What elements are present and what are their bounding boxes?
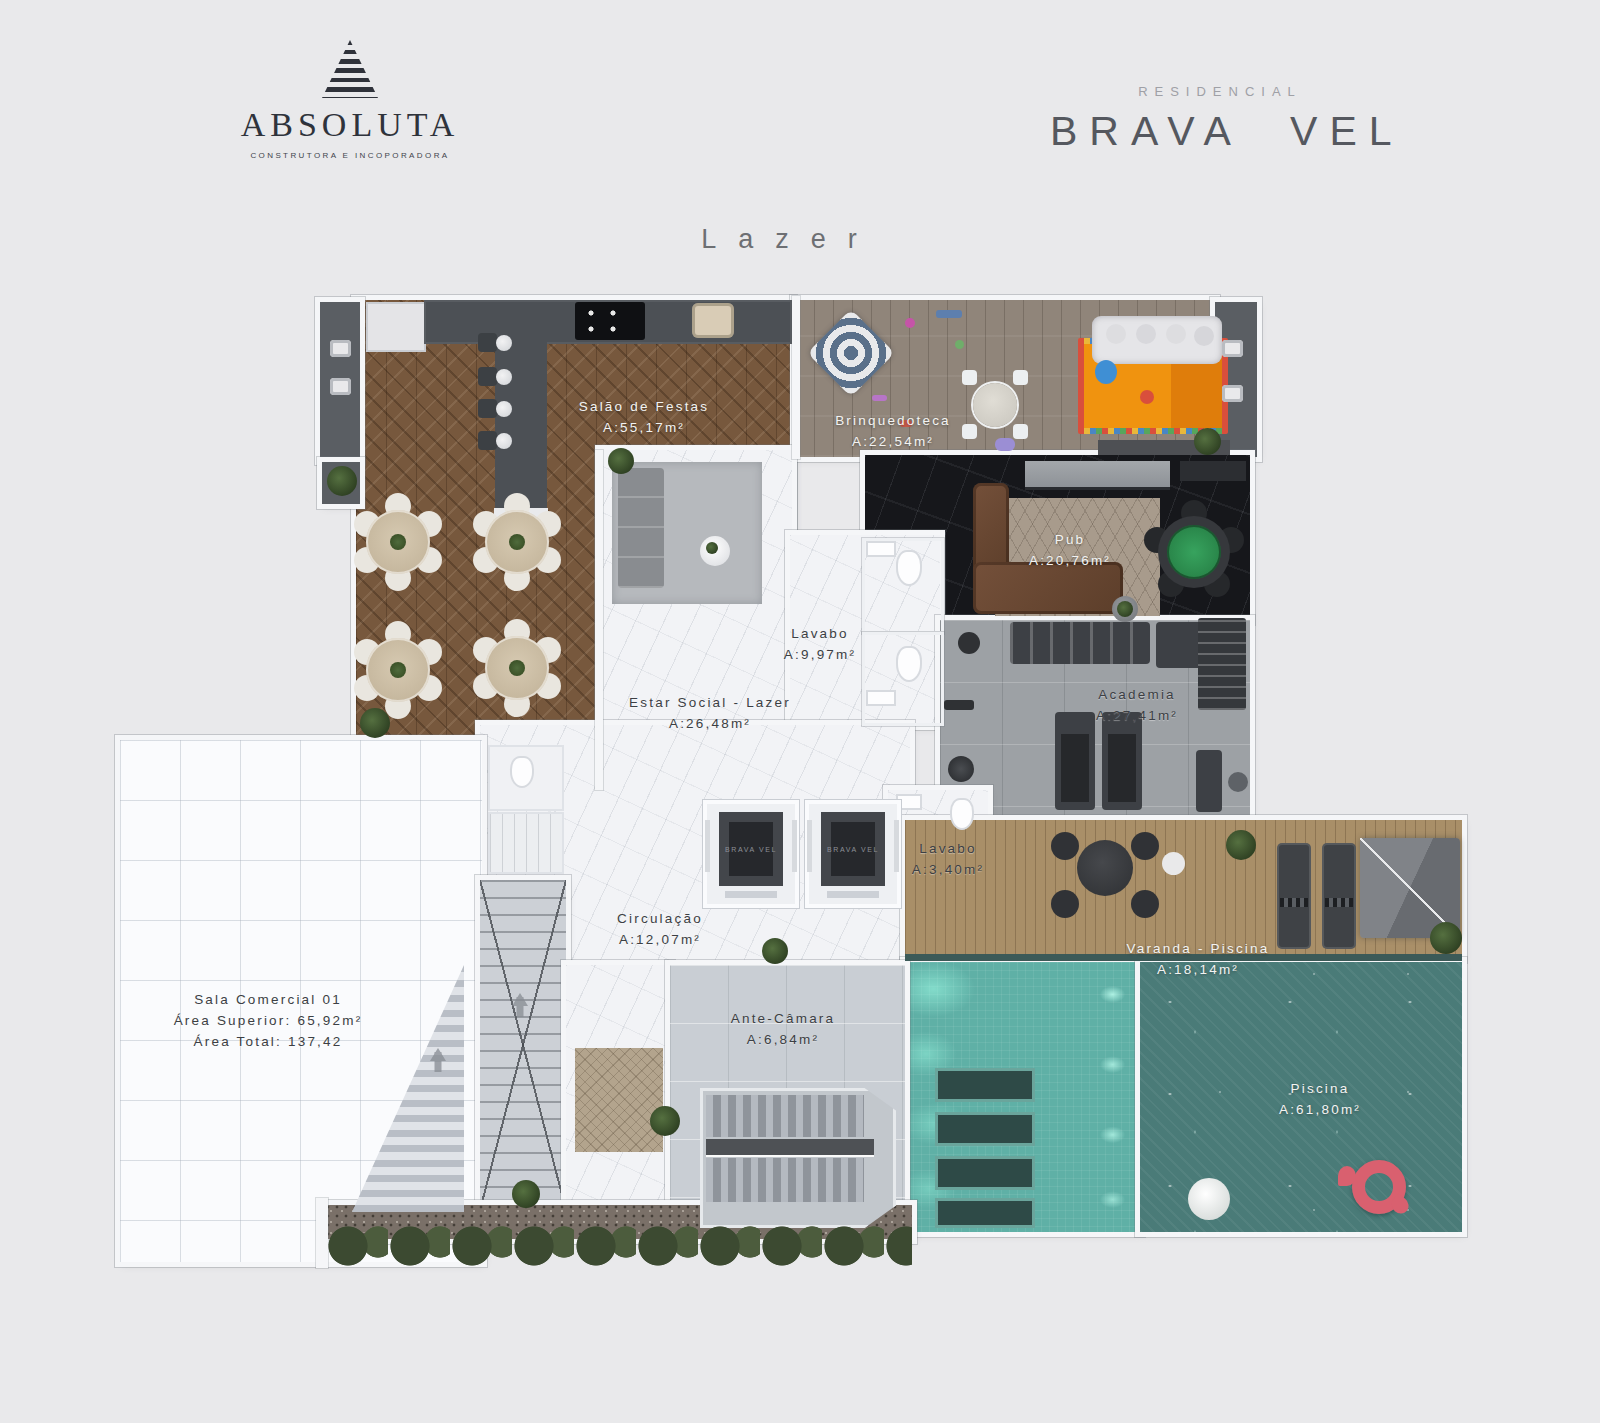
toilet (952, 800, 972, 828)
pub-bar-shelf (1180, 461, 1246, 481)
plant (1226, 830, 1256, 860)
bar-stool-seat (496, 335, 512, 351)
deck-lounger (1322, 843, 1356, 949)
elevator-mat: BRAVA VEL (729, 822, 773, 876)
deck-side-table (1162, 852, 1185, 875)
toy (936, 310, 962, 318)
stairs-upper-flight (706, 1095, 864, 1137)
bar-stool (478, 399, 497, 418)
elevator-mat: BRAVA VEL (831, 822, 875, 876)
label-varanda-piscina: Varanda - PiscinaA:18,14m² (1127, 939, 1270, 981)
toy (955, 340, 964, 349)
label-ante-camara: Ante-CâmaraA:6,84m² (731, 1009, 835, 1051)
bar-stool (478, 431, 497, 450)
barbell (944, 700, 974, 710)
dining-table (469, 620, 565, 716)
flamingo-float-head (1338, 1166, 1356, 1186)
pool-lounger (935, 1112, 1035, 1146)
plant (762, 938, 788, 964)
toy (872, 395, 887, 401)
rug-motif (1095, 360, 1117, 384)
up-arrow-icon (430, 1040, 446, 1074)
cooktop (575, 302, 645, 340)
toy (905, 318, 915, 328)
label-piscina: PiscinaA:61,80m² (1279, 1079, 1361, 1121)
project-logo: RESIDENCIAL BRAVA VEL (1050, 84, 1390, 155)
project-kicker: RESIDENCIAL (1050, 84, 1390, 99)
pool-lounger (935, 1068, 1035, 1102)
deck-dining-table (1077, 840, 1133, 896)
elevator-cab: BRAVA VEL (719, 812, 783, 886)
sink (868, 543, 894, 555)
pub-tv-cabinet (1025, 461, 1170, 487)
weight-plate (948, 756, 974, 782)
exercise-ball (1228, 772, 1248, 792)
dumbbell-rack (1198, 618, 1246, 710)
project-name: BRAVA VEL (1050, 108, 1390, 155)
builder-tagline: CONSTRUTORA E INCOPORADORA (240, 151, 460, 160)
sink (898, 796, 920, 808)
up-arrow-icon (512, 985, 528, 1019)
pool-steps (1085, 962, 1140, 1232)
toilet (512, 758, 532, 786)
plant (512, 1180, 540, 1208)
label-salao-de-festas: Salão de FestasA:55,17m² (579, 397, 710, 439)
pyramid-logo-icon (322, 40, 378, 98)
dining-table (350, 622, 446, 718)
bar-stool-seat (496, 401, 512, 417)
bar-stool (478, 367, 497, 386)
floor-title: Lazer (600, 224, 980, 255)
label-pub: PubA:20,76m² (1029, 530, 1111, 572)
toy (995, 438, 1015, 451)
bar-stool-seat (496, 433, 512, 449)
sink (868, 692, 894, 704)
ac-unit (1222, 385, 1243, 402)
label-circulacao: CirculaçãoA:12,07m² (617, 909, 703, 951)
ac-unit (330, 340, 351, 357)
dining-table (469, 494, 565, 590)
stairwell-glazed (480, 880, 566, 1210)
plant (608, 448, 634, 474)
ac-unit (330, 378, 351, 395)
fridge-appliances (366, 302, 426, 352)
label-estar-social: Estar Social - LazerA:26,48m² (629, 693, 791, 735)
corridor-rug (575, 1048, 663, 1152)
dining-table (350, 494, 446, 590)
elevator: BRAVA VEL (703, 800, 799, 908)
gym-bench (1196, 750, 1222, 812)
stairs-landing (706, 1139, 874, 1155)
bar-stool (478, 333, 497, 352)
wall-segment (595, 450, 603, 790)
pool-float-round (1188, 1178, 1230, 1220)
kettlebell (958, 632, 980, 654)
pool-lounger (935, 1156, 1035, 1190)
toilet (898, 648, 920, 680)
elevator-cab: BRAVA VEL (821, 812, 885, 886)
rug-motif (1140, 390, 1154, 404)
kids-chair (1013, 424, 1028, 439)
bar-stool-seat (496, 369, 512, 385)
wc-stall (862, 632, 944, 726)
playroom-sofa (1092, 316, 1222, 364)
gym-machine-row (1010, 622, 1150, 664)
plant (1194, 428, 1221, 455)
plant (1117, 601, 1133, 617)
label-academia: AcademiaA:27,41m² (1096, 685, 1178, 727)
kids-chair (962, 424, 977, 439)
kids-chair (1013, 370, 1028, 385)
plant (706, 542, 718, 554)
kids-chair (962, 370, 977, 385)
kitchen-sink (692, 303, 734, 338)
treadmill (1055, 712, 1095, 810)
label-lavabo-pequeno: LavaboA:3,40m² (912, 839, 984, 881)
poker-table (1158, 516, 1230, 588)
wall-segment (792, 296, 800, 459)
toilet (898, 552, 920, 584)
ac-unit (1222, 340, 1243, 357)
pool-lounger (935, 1198, 1035, 1228)
builder-logo: ABSOLUTA CONSTRUTORA E INCOPORADORA (240, 40, 460, 160)
plant (360, 708, 390, 738)
builder-name: ABSOLUTA (240, 106, 460, 144)
label-lavabo-social: LavaboA:9,97m² (784, 624, 856, 666)
closet (488, 812, 564, 874)
plant (327, 466, 357, 496)
elevator: BRAVA VEL (805, 800, 901, 908)
kids-table (973, 383, 1017, 427)
plant (650, 1106, 680, 1136)
hedge-row (326, 1222, 912, 1270)
estar-sofa (618, 468, 664, 588)
label-brinquedoteca: BrinquedotecaA:22,54m² (835, 411, 951, 453)
plant (1430, 922, 1462, 954)
label-sala-comercial: Sala Comercial 01Área Superior: 65,92m²Á… (174, 990, 363, 1053)
stairs-lower-flight (706, 1158, 864, 1202)
deck-lounger (1277, 843, 1311, 949)
